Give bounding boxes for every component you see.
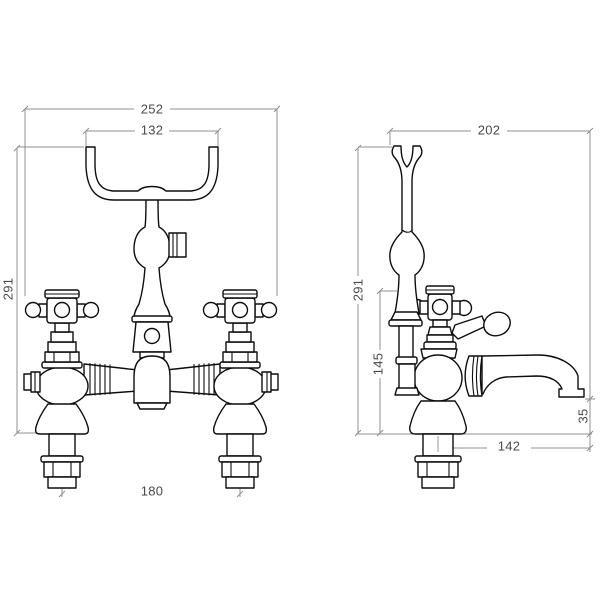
inlet-tail (226, 477, 254, 488)
bonnet-band (226, 342, 254, 352)
shank (49, 434, 75, 456)
backnut-flange (41, 456, 83, 462)
centre-body-dome (134, 356, 170, 403)
handle-ball-right (84, 303, 99, 318)
post-collar-cone (391, 312, 421, 320)
right-union-tube (166, 364, 220, 395)
handle-stem (55, 323, 69, 332)
bonnet-hex-band (427, 335, 453, 342)
inlet-connector (24, 372, 40, 392)
bracket-foot (395, 388, 419, 395)
handle-index-button (233, 303, 248, 318)
dim-cradle-width-label: 132 (141, 123, 164, 138)
centre-body-lip (137, 403, 167, 409)
bracket-block (399, 364, 415, 389)
bonnet-band (48, 342, 76, 352)
body-collar (220, 362, 260, 368)
handle-ball-left (204, 303, 219, 318)
valve-body (414, 355, 462, 401)
riser-column (134, 196, 170, 318)
handle-stem (433, 320, 447, 327)
bracket-tube (399, 326, 413, 359)
side-view (389, 146, 584, 488)
bonnet-hex (223, 352, 257, 362)
handle-arm-front (420, 301, 428, 314)
dim-height-side-label: 291 (351, 279, 366, 302)
valve-body (214, 367, 266, 405)
right-valve (204, 290, 279, 488)
backnut-flange (415, 456, 461, 462)
cradle-post (390, 146, 424, 313)
technical-drawing-canvas: 252 132 291 180 202 291 145 35 142 (0, 0, 600, 600)
dim-spout-reach-label: 142 (498, 439, 521, 454)
dim-spout-drop-label: 35 (576, 408, 591, 423)
handle-index-button (55, 303, 70, 318)
inlet-tail (422, 477, 454, 488)
backnut-hex (44, 462, 80, 477)
backnut-hex (222, 462, 258, 477)
left-union-tube (84, 364, 138, 395)
handle-ball-right (262, 303, 277, 318)
bonnet-hex (45, 352, 79, 362)
side-view-dimension-lines (355, 128, 595, 452)
backnut-hex (418, 462, 458, 477)
handle-index-button (433, 300, 448, 315)
handle-arm-back (452, 301, 460, 314)
handle-skirt (229, 332, 251, 342)
handle-stem (233, 323, 247, 332)
dim-height-front-label: 291 (1, 278, 16, 301)
dim-tail-centres-label: 180 (141, 484, 164, 499)
valve-body (36, 367, 88, 405)
left-valve (24, 290, 99, 488)
base-skirt (410, 401, 467, 434)
base-skirt (36, 404, 89, 434)
post-collar-band (389, 320, 422, 326)
bonnet-collar (424, 342, 456, 349)
inlet-connector (262, 372, 278, 392)
backnut-flange (219, 456, 261, 462)
diverter-window (145, 329, 160, 344)
shank (227, 434, 253, 456)
faucet-dimension-drawing: 252 132 291 180 202 291 145 35 142 (0, 0, 600, 600)
cradle (86, 147, 218, 200)
inlet-tail (48, 477, 76, 488)
diverter-cap (132, 316, 172, 322)
handle-ball-left (26, 303, 41, 318)
diverter-lever-ball (480, 308, 514, 339)
handle-skirt (428, 327, 452, 335)
front-view (24, 147, 278, 488)
dim-overall-width-label: 252 (141, 102, 164, 117)
dim-deck-to-bracket-label: 145 (371, 353, 386, 376)
bracket-flange (396, 357, 417, 364)
spout (482, 355, 584, 397)
dim-depth-label: 202 (478, 123, 501, 138)
handle-skirt (51, 332, 73, 342)
diverter-lever-shaft (452, 316, 486, 339)
body-collar (42, 362, 82, 368)
base-skirt (214, 404, 267, 434)
